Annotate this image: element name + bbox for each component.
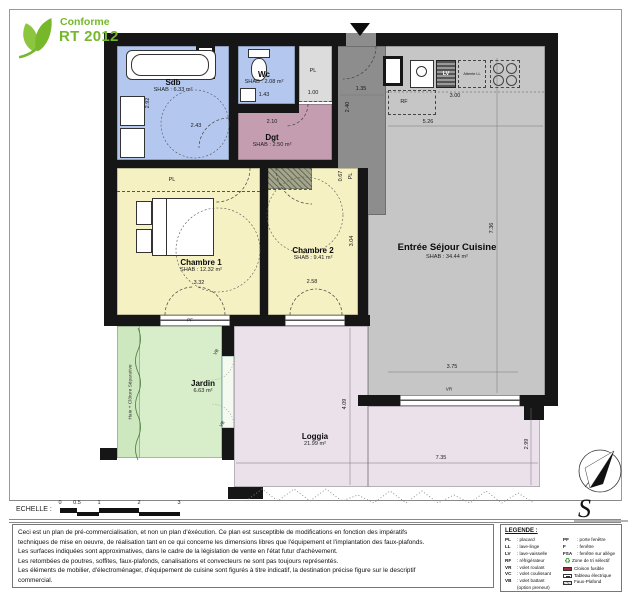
disclaimer-line: Les éléments de mobilier, d'électroménag… xyxy=(18,566,488,576)
dimension-label: 2.92 xyxy=(145,98,151,109)
french-door-label-pf: PF xyxy=(187,318,193,323)
cooktop-burner xyxy=(506,75,517,86)
legend-abbr: PF xyxy=(563,537,577,544)
room-name: Chambre 2 xyxy=(292,246,333,255)
room-name: Jardin xyxy=(191,379,215,388)
washbasin xyxy=(120,96,145,126)
room-label-chambre2: Chambre 2 SHAB : 9.41 m² xyxy=(292,246,333,262)
legend-item: PF: porte fenêtre xyxy=(563,537,621,544)
legend-text: : réfrigérateur xyxy=(517,558,545,565)
room-area: SHAB : 9.41 m² xyxy=(292,255,333,262)
dishwasher-label: LV xyxy=(443,71,450,77)
room-label-chambre1: Chambre 1 SHAB : 12.32 m² xyxy=(180,258,222,274)
refrigerator-label: RF xyxy=(400,99,407,105)
legend-text: (option preneur) xyxy=(517,585,550,592)
legend-item: F: fenêtre xyxy=(563,544,621,551)
room-chambre2-fill xyxy=(268,168,358,315)
disclaimer-line: Les surfaces indiquées sont approximativ… xyxy=(18,547,488,557)
legend-text: Cloison fusible xyxy=(574,566,604,573)
nightstand xyxy=(136,201,152,225)
electrical-panel-swatch xyxy=(563,574,572,579)
room-label-loggia: Loggia 21.99 m² xyxy=(302,432,328,448)
hedge-annotation: Haie + Clôture Séparative xyxy=(129,364,134,419)
legend-item: FSA: fenêtre sur allège xyxy=(563,551,621,558)
closet-front-chambre1 xyxy=(117,191,260,192)
dimension-label: 3.00 xyxy=(450,93,461,99)
wall-segment xyxy=(376,33,558,46)
wall-segment xyxy=(358,395,400,406)
wall-segment xyxy=(104,315,160,326)
scale-tick: 1 xyxy=(97,500,100,506)
dimension-label: 2.58 xyxy=(307,279,318,285)
wall-segment xyxy=(100,448,117,460)
room-area: SHAB : 2.08 m² xyxy=(245,79,284,86)
room-area: SHAB : 6.33 m² xyxy=(154,87,193,94)
legend-item: Faux-Plafond xyxy=(563,579,621,586)
legend-text: : porte fenêtre xyxy=(577,537,606,544)
room-name: Entrée Séjour Cuisine xyxy=(398,243,497,254)
cooktop-burner xyxy=(493,75,504,86)
legend-item: LL: lave-linge xyxy=(505,544,561,551)
window-chambre2-pf xyxy=(285,315,345,326)
legend-item: ♻Zone de tri sélectif xyxy=(563,558,621,566)
room-area: SHAB : 12.32 m² xyxy=(180,267,222,274)
legend-text: Faux-Plafond xyxy=(574,579,601,586)
dimension-label: 3.32 xyxy=(194,280,205,286)
room-name: Wc xyxy=(245,70,284,79)
legend-abbr: F xyxy=(563,544,577,551)
legend-text: Tableau électrique xyxy=(574,573,611,580)
legend-item: (option preneur) xyxy=(505,585,561,592)
legend-abbr: LV xyxy=(505,551,517,558)
legend-title: LEGENDE : xyxy=(505,528,617,534)
dimension-label: 3.75 xyxy=(447,364,458,370)
dimension-label: 2.99 xyxy=(524,439,530,450)
legend-item: RF: réfrigérateur xyxy=(505,558,561,565)
window-sejour-bay xyxy=(400,395,520,406)
legend-box: LEGENDE : PL: placard LL: lave-linge LV:… xyxy=(500,524,622,592)
legend-item: PL: placard xyxy=(505,537,561,544)
closet-front-pl xyxy=(299,101,332,102)
cooktop-burner xyxy=(493,63,504,74)
legend-item: VC: volet coulissant xyxy=(505,571,561,578)
cooktop-burner xyxy=(506,63,517,74)
wall-segment xyxy=(228,487,263,499)
legend-abbr: VB xyxy=(505,578,517,585)
room-name: Sdb xyxy=(154,78,193,87)
wall-segment xyxy=(238,104,299,113)
room-label-sejour: Entrée Séjour Cuisine SHAB : 34.44 m² xyxy=(398,243,497,261)
scale-tick: 0.5 xyxy=(73,500,81,506)
scale-bar-segment xyxy=(99,508,139,512)
wall-segment xyxy=(358,168,368,326)
wall-segment xyxy=(545,33,558,406)
separator-line xyxy=(9,522,621,523)
legend-abbr: FSA xyxy=(563,551,577,558)
logo-brand-line2: RT 2012 xyxy=(59,28,119,45)
scale-tick: 0 xyxy=(58,500,61,506)
wall-segment xyxy=(260,168,268,315)
wall-segment xyxy=(222,428,234,460)
room-label-jardin: Jardin 6.63 m² xyxy=(191,379,215,395)
closet-label: PL xyxy=(348,173,354,180)
legend-text: : volet roulant xyxy=(517,565,545,572)
room-name: Chambre 1 xyxy=(180,258,222,267)
roller-shutter-label-vr: VR xyxy=(446,387,452,392)
disclaimer-line: techniques de mise en oeuvre, de réalisa… xyxy=(18,538,488,548)
duct-shaft-inner xyxy=(386,59,400,83)
room-area: 6.63 m² xyxy=(191,388,215,395)
wall-segment xyxy=(332,46,338,168)
wall-segment xyxy=(104,160,338,168)
wall-segment xyxy=(229,46,238,160)
dimension-label: 1.35 xyxy=(356,86,367,92)
scale-bar-segment xyxy=(77,512,99,516)
wall-segment xyxy=(104,33,346,46)
recycle-icon: ♻ xyxy=(563,558,572,566)
room-name: Loggia xyxy=(302,432,328,441)
disclaimer-line: commercial. xyxy=(18,576,488,586)
wall-segment xyxy=(524,406,544,420)
wall-segment xyxy=(104,33,117,326)
scale-label: ECHELLE : xyxy=(16,506,52,513)
nightstand xyxy=(136,229,152,253)
closet-label: PL xyxy=(169,177,176,183)
window-chambre1-pf xyxy=(160,315,230,326)
chambre2-closet-fill xyxy=(268,168,312,189)
legend-text: : volet battant xyxy=(517,578,545,585)
room-area: SHAB : 34.44 m² xyxy=(398,254,497,261)
dimension-label: 2.40 xyxy=(345,102,351,113)
wall-segment xyxy=(295,46,299,104)
bed xyxy=(152,198,214,256)
legend-abbr: PL xyxy=(505,537,517,544)
wall-segment xyxy=(230,315,285,326)
separator-line xyxy=(9,519,621,520)
legend-abbr: VC xyxy=(505,571,517,578)
wall-segment xyxy=(222,326,234,356)
entrance-arrow-icon xyxy=(350,23,370,36)
dimension-label: 3.04 xyxy=(349,236,355,247)
disclaimer-box: Ceci est un plan de pré-commercialisatio… xyxy=(12,524,494,588)
wall-segment xyxy=(520,395,558,406)
compass-south-label: S xyxy=(578,496,591,522)
legend-text: : lave-linge xyxy=(517,544,539,551)
floor-plan-sheet: Conforme RT 2012 Sdb SHAB : 6.33 m² Wc S… xyxy=(0,0,630,595)
legend-item: Tableau électrique xyxy=(563,573,621,580)
room-area: 21.99 m² xyxy=(302,441,328,448)
legend-item: VB: volet battant xyxy=(505,578,561,585)
room-label-wc: Wc SHAB : 2.08 m² xyxy=(245,70,284,86)
legend-text: Zone de tri sélectif xyxy=(572,558,610,565)
washbasin xyxy=(120,128,145,158)
disclaimer-line: Ceci est un plan de pré-commercialisatio… xyxy=(18,528,488,538)
faux-plafond-swatch xyxy=(563,581,572,586)
legend-text: : lave-vaisselle xyxy=(517,551,547,558)
legend-text: : fenêtre sur allège xyxy=(577,551,615,558)
bed-pillow-line xyxy=(166,199,167,255)
refrigerator-zone xyxy=(388,90,436,115)
dimension-label: 0.67 xyxy=(338,171,344,182)
room-label-sdb: Sdb SHAB : 6.33 m² xyxy=(154,78,193,94)
scale-tick: 3 xyxy=(177,500,180,506)
bathtub-inner xyxy=(131,54,209,76)
fusible-swatch xyxy=(563,567,572,572)
room-label-dgt: Dgt SHAB : 2.50 m² xyxy=(253,133,292,149)
dimension-label: 2.43 xyxy=(191,123,202,129)
legend-abbr: VR xyxy=(505,565,517,572)
scale-bar-segment xyxy=(60,508,77,512)
wc-handbasin xyxy=(240,88,256,102)
dimension-label: 5.26 xyxy=(423,119,434,125)
dimension-label: 2.10 xyxy=(267,119,278,125)
legend-left-column: PL: placard LL: lave-linge LV: lave-vais… xyxy=(505,537,561,592)
legend-item: Cloison fusible xyxy=(563,566,621,573)
logo-brand-line1: Conforme xyxy=(60,16,110,28)
wall-segment xyxy=(345,315,370,326)
legend-abbr: RF xyxy=(505,558,517,565)
scale-bar-segment xyxy=(139,512,180,516)
legend-text: : fenêtre xyxy=(577,544,594,551)
legend-text: : placard xyxy=(517,537,535,544)
legend-right-column: PF: porte fenêtre F: fenêtre FSA: fenêtr… xyxy=(563,537,621,586)
washer-hookup-label: Attente LL xyxy=(463,72,480,76)
legend-abbr: LL xyxy=(505,544,517,551)
room-area: SHAB : 2.50 m² xyxy=(253,142,292,149)
room-name: Dgt xyxy=(253,133,292,142)
dimension-label: 7.36 xyxy=(489,223,495,234)
dimension-label: 1.00 xyxy=(308,90,319,96)
separator-line xyxy=(9,500,621,501)
dimension-label: 4.09 xyxy=(342,399,348,410)
scale-tick: 2 xyxy=(137,500,140,506)
kitchen-sink-basin xyxy=(416,66,427,77)
closet-front-chambre2 xyxy=(268,189,312,190)
dimension-label: 1.43 xyxy=(259,92,270,98)
legend-item: VR: volet roulant xyxy=(505,565,561,572)
disclaimer-line: Les retombées de poutres, soffites, faux… xyxy=(18,557,488,567)
closet-label: PL xyxy=(310,68,317,74)
dimension-label: 7.35 xyxy=(436,455,447,461)
toilet-tank xyxy=(248,49,270,58)
room-loggia-fill-right xyxy=(368,406,540,487)
legend-item: LV: lave-vaisselle xyxy=(505,551,561,558)
jardin-gate-opening xyxy=(222,356,234,428)
legend-text: : volet coulissant xyxy=(517,571,551,578)
